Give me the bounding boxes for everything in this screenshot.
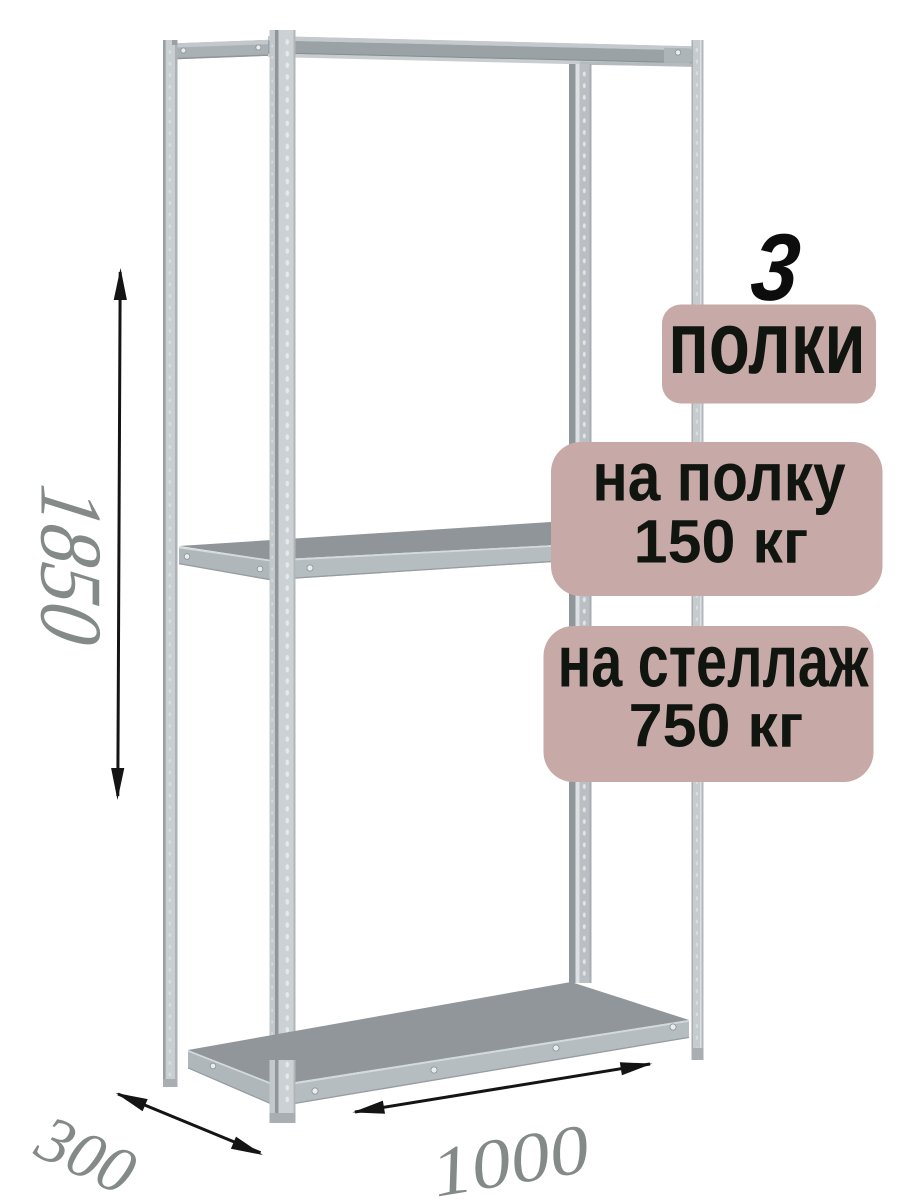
svg-text:полки: полки [668,293,865,392]
svg-text:750 кг: 750 кг [629,692,804,760]
svg-text:300: 300 [25,1101,146,1200]
svg-text:1000: 1000 [426,1110,595,1200]
svg-text:на полку: на полку [592,438,846,516]
svg-text:на стеллаж: на стеллаж [558,620,870,702]
svg-text:150 кг: 150 кг [634,508,809,576]
svg-text:1850: 1850 [22,479,120,650]
